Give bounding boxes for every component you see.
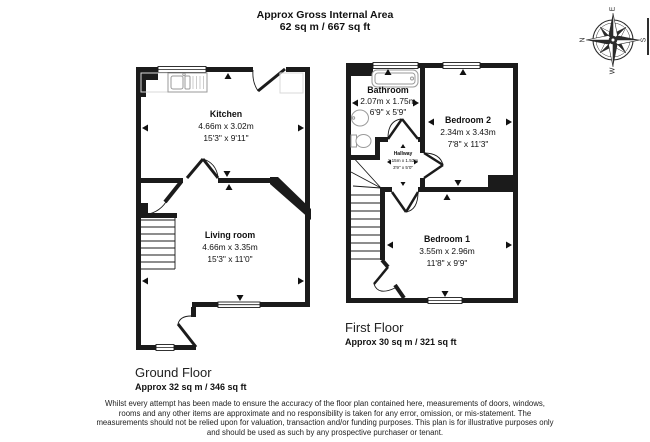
compass-rose-icon: N E S W <box>577 4 649 76</box>
hallway-imperial: 3'9" x 5'0" <box>393 165 413 170</box>
bedroom1-door <box>392 192 418 212</box>
compass-n-label: N <box>580 37 587 42</box>
bedroom1-label: Bedroom 1 <box>424 234 470 244</box>
bedroom2-metric: 2.34m x 3.43m <box>440 127 495 137</box>
bathroom-door <box>388 119 418 139</box>
bathroom-metric: 2.07m x 1.75m <box>360 96 415 106</box>
bedroom1-window <box>428 298 462 304</box>
compass-e-label: E <box>610 6 617 11</box>
basin-icon <box>352 110 369 126</box>
kitchen-imperial: 15'3" x 9'11" <box>203 133 248 143</box>
bathroom-window <box>373 63 418 69</box>
bedroom1-metric: 3.55m x 2.96m <box>419 246 474 256</box>
kitchen-living-door <box>187 159 218 178</box>
chimney-breast <box>270 177 311 220</box>
kitchen-metric: 4.66m x 3.02m <box>198 121 253 131</box>
bedroom2-imperial: 7'8" x 11'3" <box>448 139 489 149</box>
page-edge-mark <box>647 18 649 55</box>
living-room-label: Living room <box>205 230 256 240</box>
ground-floor-plan: Kitchen 4.66m x 3.02m 15'3" x 9'11" Livi… <box>130 60 315 355</box>
ground-floor-area: Approx 32 sq m / 346 sq ft <box>135 382 247 392</box>
first-floor-plan: Bathroom 2.07m x 1.75m 6'9" x 5'9" Bedro… <box>340 55 525 310</box>
page-header: Approx Gross Internal Area 62 sq m / 667… <box>0 9 650 33</box>
front-door <box>178 316 196 347</box>
living-room-metric: 4.66m x 3.35m <box>202 242 257 252</box>
kitchen-back-door <box>253 67 286 92</box>
floorplan-page: Approx Gross Internal Area 62 sq m / 667… <box>0 0 650 442</box>
hallway-metric: 1.15m x 1.53m <box>388 158 419 163</box>
compass-w-label: W <box>610 67 617 74</box>
bedroom2-door <box>424 153 443 178</box>
first-floor-title: First Floor <box>345 321 457 335</box>
bedroom1-imperial: 11'8" x 9'9" <box>427 258 468 268</box>
stairs <box>141 218 175 269</box>
bathroom-imperial: 6'9" x 5'9" <box>370 107 407 117</box>
chimney-breast <box>488 175 515 192</box>
first-floor-caption: First Floor Approx 30 sq m / 321 sq ft <box>345 321 457 347</box>
understairs-door <box>374 267 395 291</box>
toilet-icon <box>351 135 371 148</box>
disclaimer-text: Whilst every attempt has been made to en… <box>95 399 555 437</box>
header-title: Approx Gross Internal Area <box>0 9 650 21</box>
living-room-window <box>218 302 260 308</box>
header-total-area: 62 sq m / 667 sq ft <box>0 21 650 33</box>
kitchen-window <box>158 67 206 73</box>
living-room-imperial: 15'3" x 11'0" <box>207 254 252 264</box>
stairs <box>351 155 381 259</box>
ground-floor-caption: Ground Floor Approx 32 sq m / 346 sq ft <box>135 366 247 392</box>
stairs-head-wall <box>141 213 177 218</box>
hallway-label: Hallway <box>394 151 413 157</box>
kitchen-label: Kitchen <box>210 109 242 119</box>
bathroom-label: Bathroom <box>367 85 409 95</box>
ground-floor-title: Ground Floor <box>135 366 247 380</box>
bedroom2-window <box>443 63 480 69</box>
entrance-window <box>156 345 174 351</box>
first-floor-area: Approx 30 sq m / 321 sq ft <box>345 337 457 347</box>
bedroom2-label: Bedroom 2 <box>445 115 491 125</box>
